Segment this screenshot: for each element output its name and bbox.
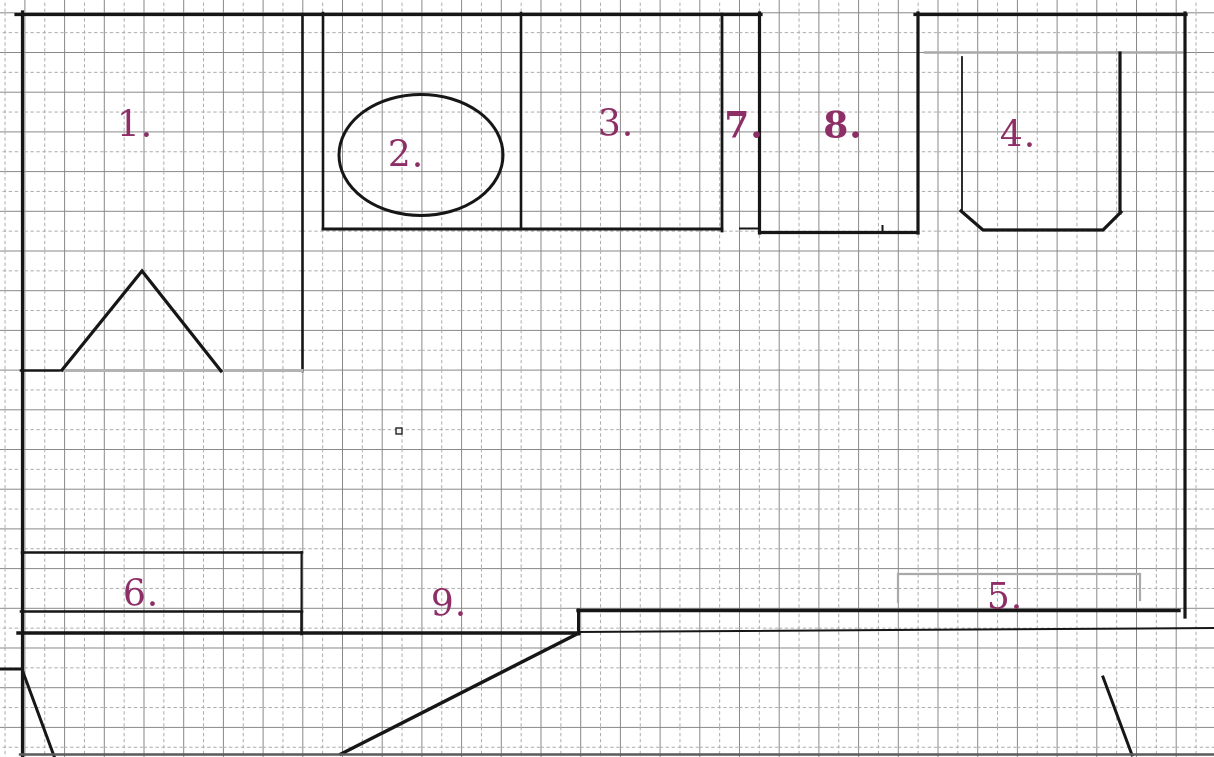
grid-paper-background [0, 0, 1214, 757]
floor-plan-canvas: 1.2.3.4.5.6.7.8.9. [0, 0, 1214, 757]
selection-handle-marker[interactable] [396, 428, 402, 434]
floor-plan-svg [0, 0, 1214, 757]
